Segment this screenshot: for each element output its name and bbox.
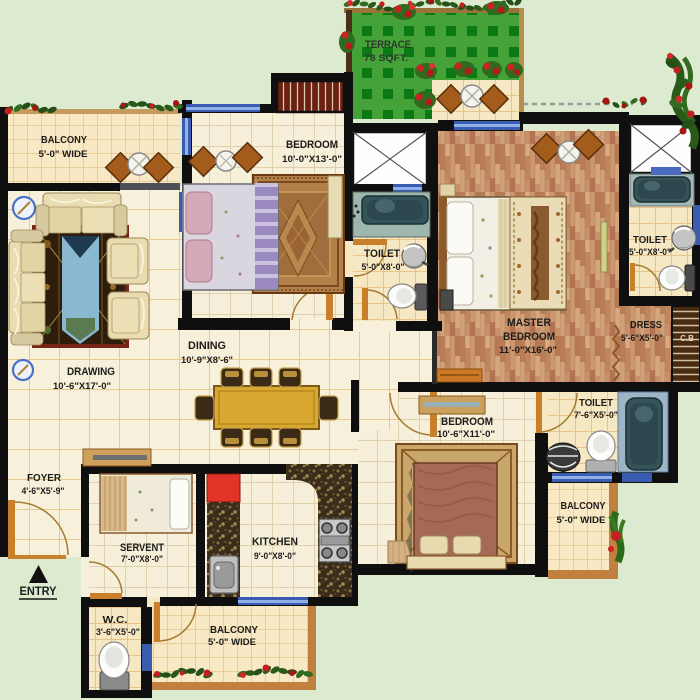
svg-text:KITCHEN: KITCHEN — [252, 536, 298, 548]
svg-text:5'-0" WIDE: 5'-0" WIDE — [208, 637, 256, 648]
svg-text:W.C.: W.C. — [103, 615, 128, 626]
svg-text:BALCONY: BALCONY — [561, 501, 606, 512]
svg-text:7'-6"X5'-0": 7'-6"X5'-0" — [574, 410, 618, 420]
svg-text:9'-0"X8'-0": 9'-0"X8'-0" — [254, 551, 296, 562]
svg-text:5'-0" WIDE: 5'-0" WIDE — [557, 515, 606, 526]
svg-text:BEDROOM: BEDROOM — [441, 416, 493, 428]
svg-text:TOILET: TOILET — [579, 398, 613, 409]
svg-text:4'-6"X5'-9": 4'-6"X5'-9" — [22, 486, 65, 497]
svg-text:78 SQFT.: 78 SQFT. — [364, 53, 408, 64]
svg-text:10'-6"X17'-0": 10'-6"X17'-0" — [53, 381, 111, 392]
svg-text:MASTER: MASTER — [507, 317, 551, 329]
svg-text:10'-0"X13'-0": 10'-0"X13'-0" — [282, 154, 342, 165]
svg-text:5'-0" WIDE: 5'-0" WIDE — [39, 149, 88, 160]
svg-text:BALCONY: BALCONY — [210, 624, 258, 636]
svg-text:C.B: C.B — [680, 334, 694, 343]
svg-text:FOYER: FOYER — [27, 472, 61, 484]
svg-text:3'-6"X5'-0": 3'-6"X5'-0" — [96, 627, 140, 637]
svg-text:BALCONY: BALCONY — [41, 134, 87, 146]
svg-text:5'-0"X8'-0": 5'-0"X8'-0" — [362, 262, 405, 273]
svg-text:DRAWING: DRAWING — [67, 366, 115, 378]
svg-text:5'-0"X8'-0": 5'-0"X8'-0" — [629, 247, 671, 257]
svg-text:SERVENT: SERVENT — [120, 542, 164, 554]
svg-text:TERRACE: TERRACE — [365, 39, 411, 51]
svg-text:7'-0"X8'-0": 7'-0"X8'-0" — [121, 554, 163, 565]
svg-text:ENTRY: ENTRY — [20, 586, 57, 598]
svg-text:10'-6"X11'-0": 10'-6"X11'-0" — [437, 429, 495, 440]
svg-text:BEDROOM: BEDROOM — [503, 331, 555, 343]
svg-text:5'-6"X5'-0": 5'-6"X5'-0" — [621, 333, 663, 343]
svg-text:DINING: DINING — [188, 340, 226, 352]
svg-text:TOILET: TOILET — [633, 235, 667, 246]
svg-text:DRESS: DRESS — [630, 320, 662, 331]
svg-text:10'-9"X8'-6": 10'-9"X8'-6" — [181, 355, 233, 366]
svg-text:TOILET: TOILET — [364, 248, 400, 260]
svg-text:BEDROOM: BEDROOM — [286, 139, 338, 151]
svg-text:11'-0"X16'-0": 11'-0"X16'-0" — [499, 345, 557, 356]
